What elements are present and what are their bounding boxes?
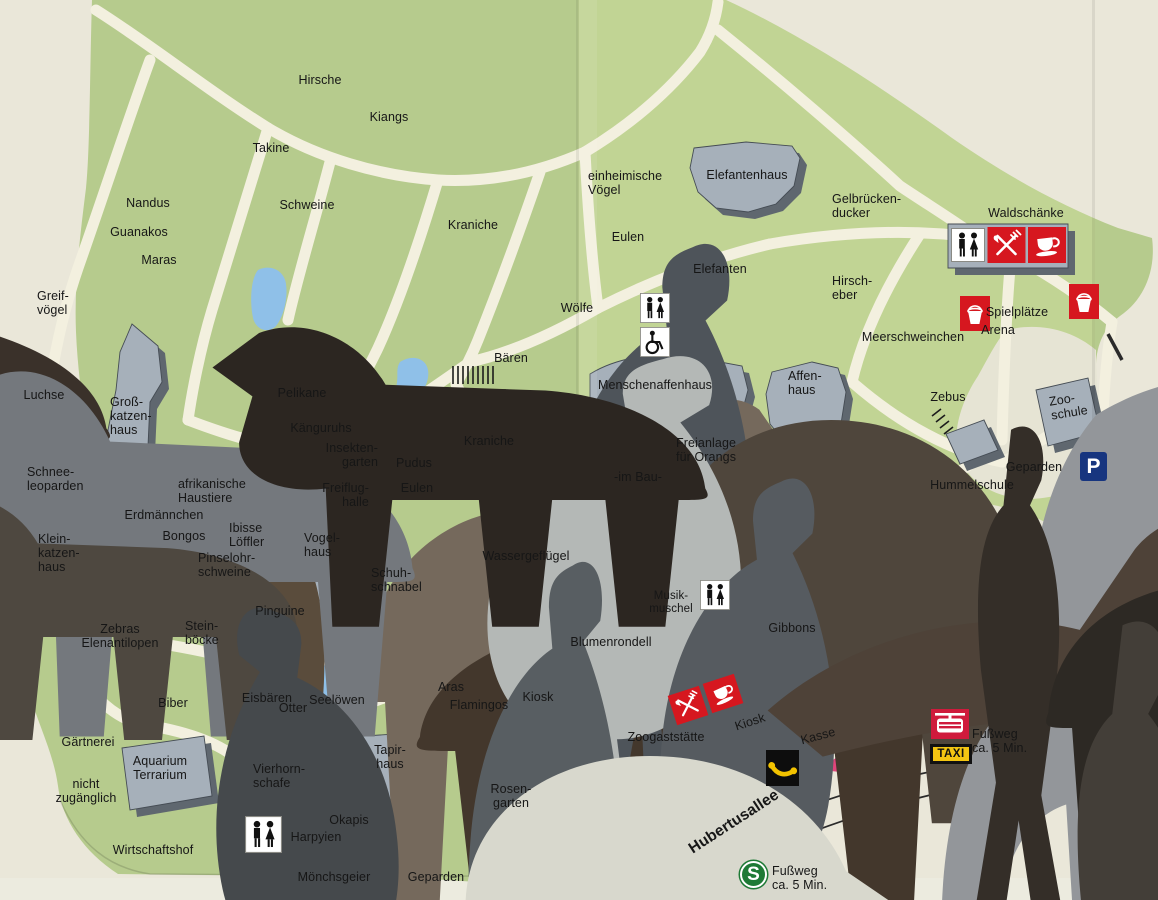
map-graphic bbox=[0, 0, 1158, 900]
schwebebahn-icon bbox=[931, 709, 969, 739]
sbahn-icon: S bbox=[740, 861, 767, 888]
bucket-icon bbox=[960, 296, 990, 331]
coffee-icon bbox=[1028, 227, 1066, 263]
taxi-icon: TAXI bbox=[930, 744, 972, 764]
parking-icon: P bbox=[1080, 452, 1107, 481]
wc-icon bbox=[245, 816, 282, 853]
wc-icon bbox=[640, 292, 670, 324]
bucket-icon bbox=[1069, 284, 1099, 319]
wheelchair-icon bbox=[640, 326, 670, 358]
wc-icon bbox=[951, 227, 985, 263]
restaurant-icon bbox=[987, 227, 1026, 263]
phone-icon bbox=[766, 750, 799, 786]
zoo-map: HirscheKiangsTakineNandusSchweineGuanako… bbox=[0, 0, 1158, 900]
wc-icon bbox=[700, 579, 730, 611]
